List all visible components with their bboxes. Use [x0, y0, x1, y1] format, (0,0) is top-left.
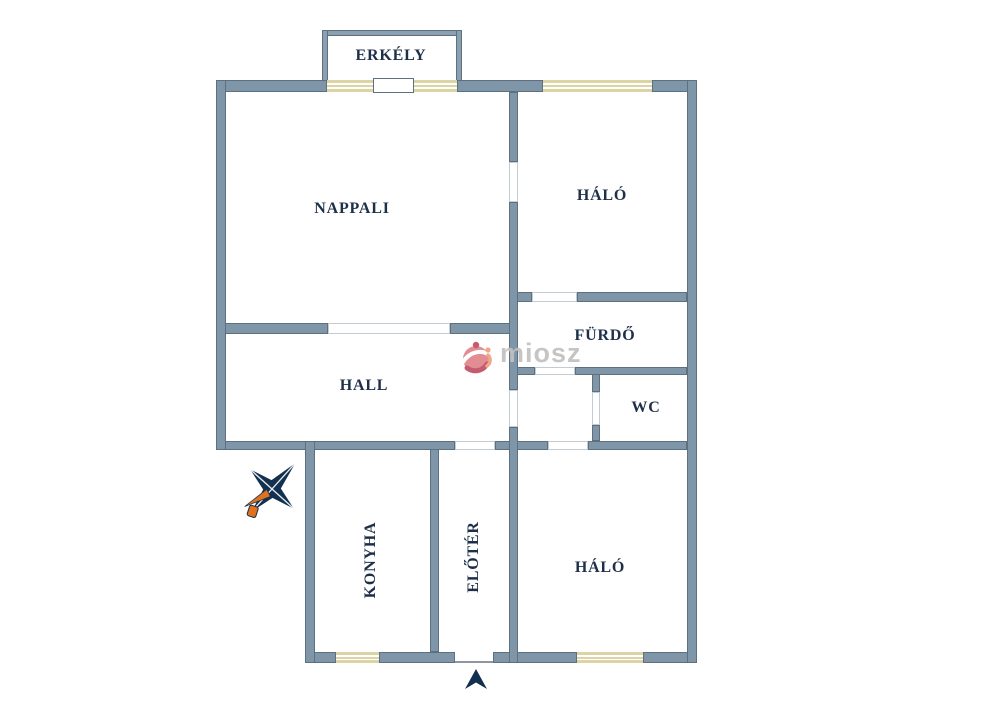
window — [577, 652, 643, 663]
wall-segment — [495, 441, 548, 450]
watermark-text: miosz — [500, 340, 582, 367]
wall-segment — [379, 652, 455, 663]
room-label-wc: WC — [631, 399, 660, 417]
wall-segment — [216, 80, 327, 92]
room-label-eloter: ELŐTÉR — [465, 521, 483, 593]
door-opening — [548, 441, 588, 450]
wall-segment — [493, 652, 577, 663]
wall-segment — [592, 374, 600, 392]
door-opening — [455, 441, 495, 450]
wall-segment — [509, 92, 518, 162]
wall-segment — [216, 323, 328, 334]
door-opening — [535, 367, 575, 375]
wall-segment — [588, 441, 687, 450]
door-opening — [509, 390, 518, 427]
wall-segment — [430, 449, 439, 652]
wall-segment — [450, 323, 510, 334]
room-label-hall: HALL — [340, 377, 389, 395]
door-opening — [328, 323, 450, 334]
window — [336, 652, 379, 663]
door-opening — [592, 392, 600, 425]
miosz-logo-icon — [455, 337, 497, 379]
room-label-halo-bottom: HÁLÓ — [575, 559, 625, 577]
wall-segment — [592, 425, 600, 441]
wall-segment — [509, 427, 518, 663]
room-label-nappali: NAPPALI — [314, 200, 390, 218]
entrance-arrow-icon — [464, 667, 488, 691]
window — [543, 80, 652, 92]
wall-segment — [216, 80, 226, 450]
floor-plan: ERKÉLY NAPPALI HÁLÓ FÜRDŐ WC HALL KONYHA… — [0, 0, 1000, 717]
balcony-wall — [322, 30, 462, 36]
room-label-konyha: KONYHA — [362, 522, 380, 599]
room-label-halo-top: HÁLÓ — [577, 187, 627, 205]
balcony-wall — [322, 30, 328, 82]
room-label-erkely: ERKÉLY — [356, 47, 427, 65]
balcony-wall — [456, 30, 462, 82]
door-opening — [509, 162, 518, 202]
door-opening — [532, 292, 577, 302]
compass-ornament-icon — [246, 504, 260, 520]
watermark: miosz — [455, 337, 497, 379]
wall-segment — [687, 80, 697, 663]
room-label-furdo: FÜRDŐ — [575, 327, 636, 345]
wall-segment — [216, 441, 455, 450]
wall-segment — [577, 292, 687, 302]
wall-segment — [457, 80, 543, 92]
balcony-door — [373, 78, 414, 93]
entrance-door-opening — [455, 652, 493, 663]
